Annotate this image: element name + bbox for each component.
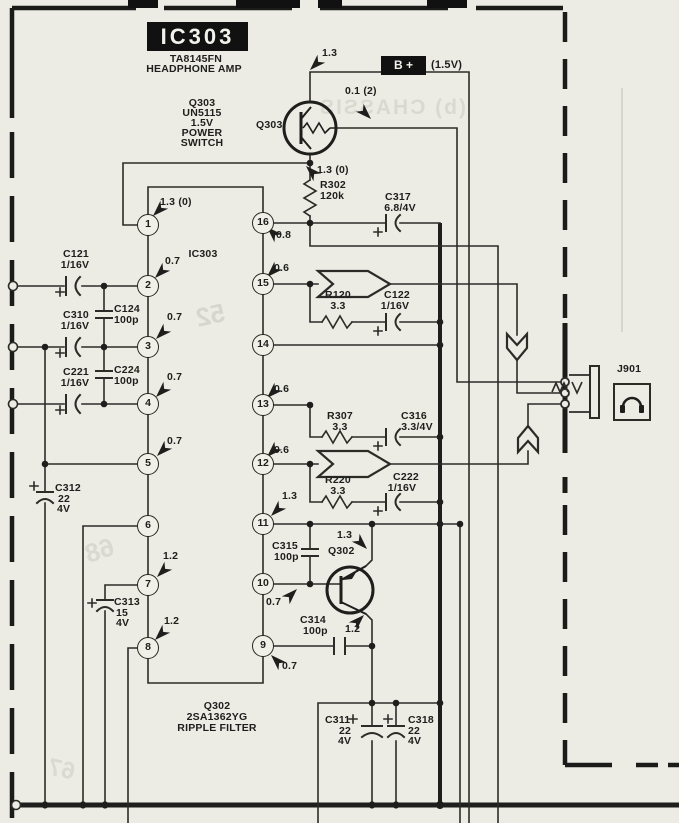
c317-value: 6.8/4V [384,203,416,214]
c314-value: 100p [303,626,328,637]
r302-value: 120k [320,191,344,202]
voltage-pin4: 0.7 [167,372,182,383]
c121-value: 1/16V [61,260,89,271]
ic-inner-label: IC303 [188,249,217,260]
ic-pin-14: 14 [252,334,274,356]
ic-pin-9: 9 [252,635,274,657]
c221-value: 1/16V [61,378,89,389]
q303-role-2: SWITCH [181,138,224,149]
voltage-pin11: 1.3 [282,491,297,502]
ic-function: HEADPHONE AMP [146,64,242,75]
ic-pin-8: 8 [137,637,159,659]
ic-pin-11: 11 [252,513,274,535]
c312-voltage: 4V [57,504,70,515]
c124-value: 100p [114,315,139,326]
voltage-pin3: 0.7 [167,312,182,323]
ic-pin-4: 4 [137,393,159,415]
c313-voltage: 4V [116,618,129,629]
ic-pin-2: 2 [137,275,159,297]
ic-pin-3: 3 [137,336,159,358]
r120-value: 3.3 [330,301,345,312]
c315-value: 100p [274,552,299,563]
r220-value: 3.3 [330,486,345,497]
voltage-pin10: 0.7 [266,597,281,608]
c316-value: 3.3/4V [401,422,433,433]
schematic-labels: IC303 TA8145FN HEADPHONE AMP Q303 UN5115… [0,0,679,823]
ic-pin-15: 15 [252,273,274,295]
q302-circle-label: Q302 [328,546,355,557]
ic-pin-7: 7 [137,574,159,596]
b-plus-voltage: (1.5V) [431,60,462,72]
c222-value: 1/16V [388,483,416,494]
ic-pin-10: 10 [252,573,274,595]
voltage-top: 1.3 [322,48,337,59]
voltage-pin7: 1.2 [163,551,178,562]
voltage-pin15: 0.6 [274,263,289,274]
q303-circle-label: Q303 [256,120,283,131]
voltage-pin5: 0.7 [167,436,182,447]
ic-pin-6: 6 [137,515,159,537]
ic-pin-16: 16 [252,212,274,234]
voltage-pin13: 0.6 [274,384,289,395]
jack-ref: J901 [617,364,641,375]
voltage-q302-collector: 1.3 [337,530,352,541]
voltage-pin16: 0.8 [276,230,291,241]
ic-title-badge: IC303 [147,22,248,51]
voltage-pin12: 0.6 [274,445,289,456]
ic-pin-12: 12 [252,453,274,475]
voltage-pin8: 1.2 [164,616,179,627]
c310-value: 1/16V [61,321,89,332]
voltage-q302-emitter: 1.2 [345,624,360,635]
voltage-pin1: 1.3 (0) [160,197,192,208]
ic-pin-5: 5 [137,453,159,475]
ic-pin-13: 13 [252,394,274,416]
c311-voltage: 4V [338,736,351,747]
voltage-pin9: 0.7 [282,661,297,672]
c224-value: 100p [114,376,139,387]
b-plus-badge: B + [381,56,426,75]
schematic-page: (b) CHASSIS 52 68 67 [0,0,679,823]
voltage-q303-base: 1.3 (0) [317,165,349,176]
voltage-pin2: 0.7 [165,256,180,267]
q302-role: RIPPLE FILTER [177,723,256,734]
c122-value: 1/16V [381,301,409,312]
c318-voltage: 4V [408,736,421,747]
ic-pin-1: 1 [137,214,159,236]
r307-value: 3.3 [332,422,347,433]
voltage-q303-out: 0.1 (2) [345,86,377,97]
